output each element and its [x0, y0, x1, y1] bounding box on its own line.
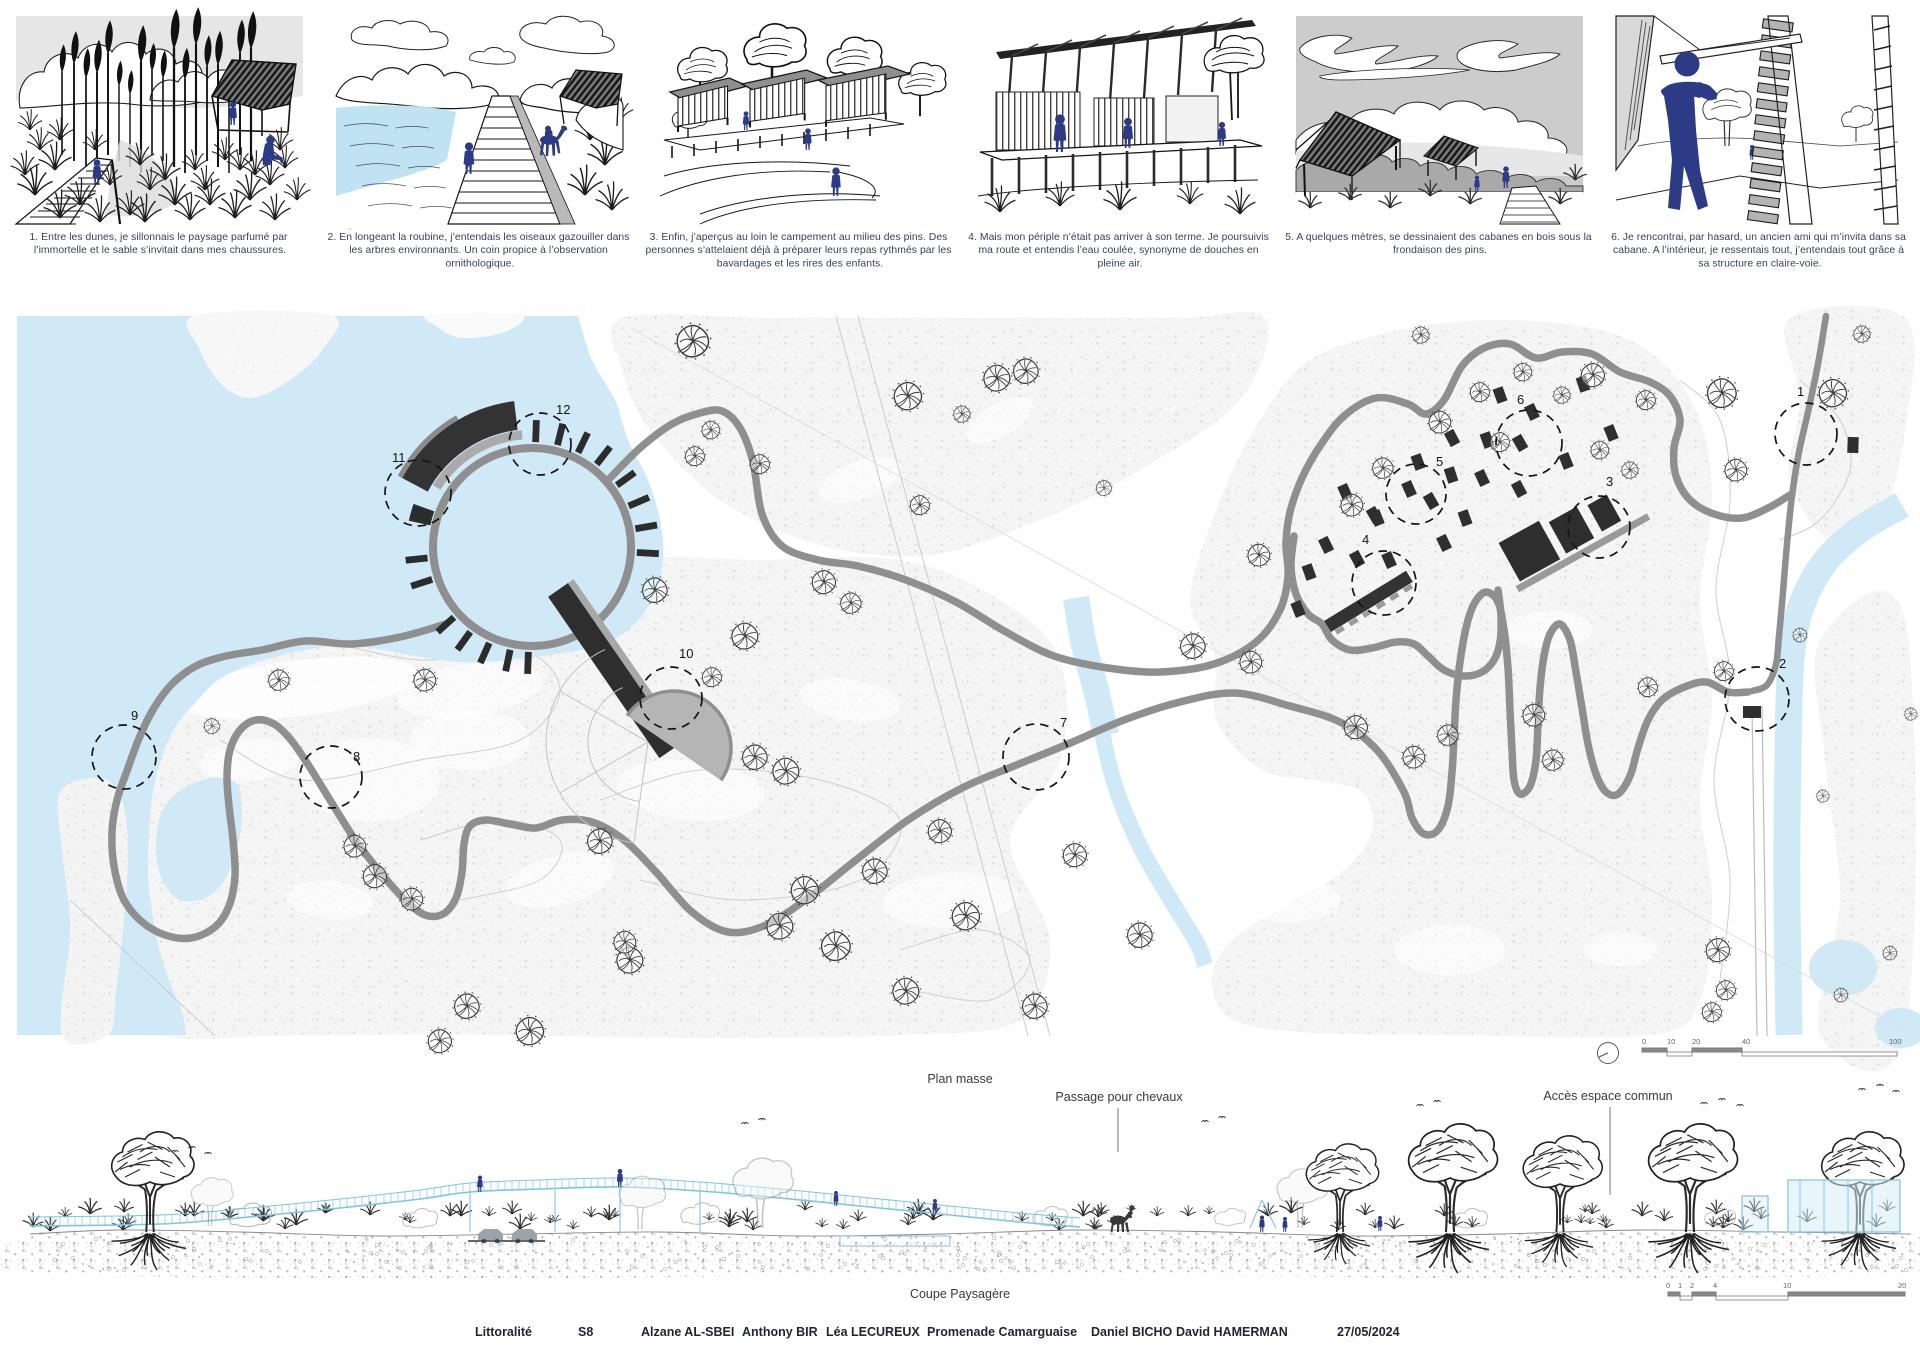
svg-text:Coupe Paysagère: Coupe Paysagère	[910, 1287, 1010, 1301]
svg-text:1: 1	[1678, 1281, 1682, 1290]
svg-text:27/05/2024: 27/05/2024	[1337, 1325, 1400, 1339]
svg-text:12: 12	[556, 402, 570, 417]
svg-text:David HAMERMAN: David HAMERMAN	[1176, 1325, 1288, 1339]
svg-text:10: 10	[1667, 1037, 1675, 1046]
svg-text:40: 40	[1742, 1037, 1750, 1046]
svg-text:Alzane AL-SBEI: Alzane AL-SBEI	[641, 1325, 734, 1339]
svg-text:0: 0	[1642, 1037, 1646, 1046]
svg-text:8: 8	[353, 749, 360, 764]
svg-text:Passage pour chevaux: Passage pour chevaux	[1055, 1090, 1183, 1104]
svg-text:10: 10	[1783, 1281, 1791, 1290]
svg-text:3: 3	[1606, 474, 1613, 489]
svg-text:4: 4	[1713, 1281, 1717, 1290]
svg-text:Anthony BIR: Anthony BIR	[742, 1325, 818, 1339]
svg-text:4: 4	[1362, 532, 1369, 547]
svg-text:Littoralité: Littoralité	[475, 1325, 532, 1339]
svg-text:9: 9	[131, 708, 138, 723]
svg-text:10: 10	[679, 646, 693, 661]
svg-text:20: 20	[1692, 1037, 1700, 1046]
svg-text:Léa LECUREUX: Léa LECUREUX	[826, 1325, 920, 1339]
svg-text:1: 1	[1797, 384, 1804, 399]
svg-text:0: 0	[1666, 1281, 1670, 1290]
svg-text:6: 6	[1517, 392, 1524, 407]
svg-text:7: 7	[1060, 715, 1067, 730]
svg-text:2: 2	[1779, 656, 1786, 671]
svg-text:20: 20	[1898, 1281, 1906, 1290]
svg-text:11: 11	[392, 450, 406, 465]
svg-text:Promenade Camarguaise: Promenade Camarguaise	[927, 1325, 1077, 1339]
svg-text:5: 5	[1436, 454, 1443, 469]
svg-text:Plan masse: Plan masse	[927, 1072, 992, 1086]
svg-text:100: 100	[1889, 1037, 1902, 1046]
svg-text:S8: S8	[578, 1325, 593, 1339]
svg-text:2: 2	[1690, 1281, 1694, 1290]
svg-text:Accès espace commun: Accès espace commun	[1543, 1089, 1672, 1103]
svg-text:Daniel BICHO: Daniel BICHO	[1091, 1325, 1173, 1339]
